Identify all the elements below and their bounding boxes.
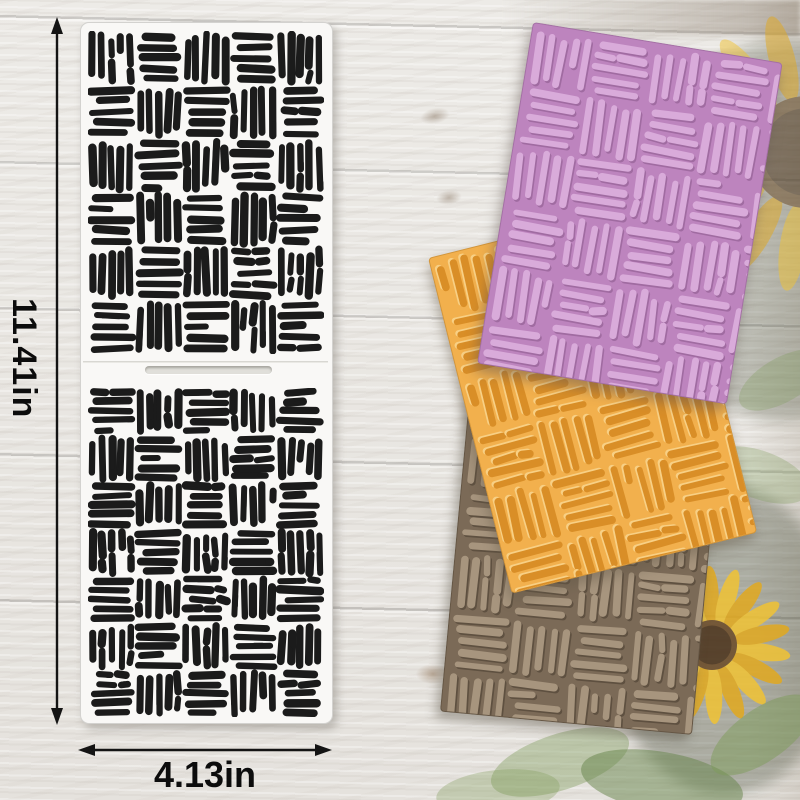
stencil-bottom-pattern — [88, 388, 324, 717]
folder-hinge-line — [83, 361, 328, 363]
stencil-folder — [80, 22, 333, 724]
stencil-top-pattern — [88, 31, 324, 354]
width-dimension-label: 4.13in — [115, 754, 295, 796]
height-dimension-label: 11.41in — [4, 298, 43, 418]
folder-hinge-slot — [145, 366, 272, 374]
product-photo-scene: 11.41in 4.13in — [0, 0, 800, 800]
